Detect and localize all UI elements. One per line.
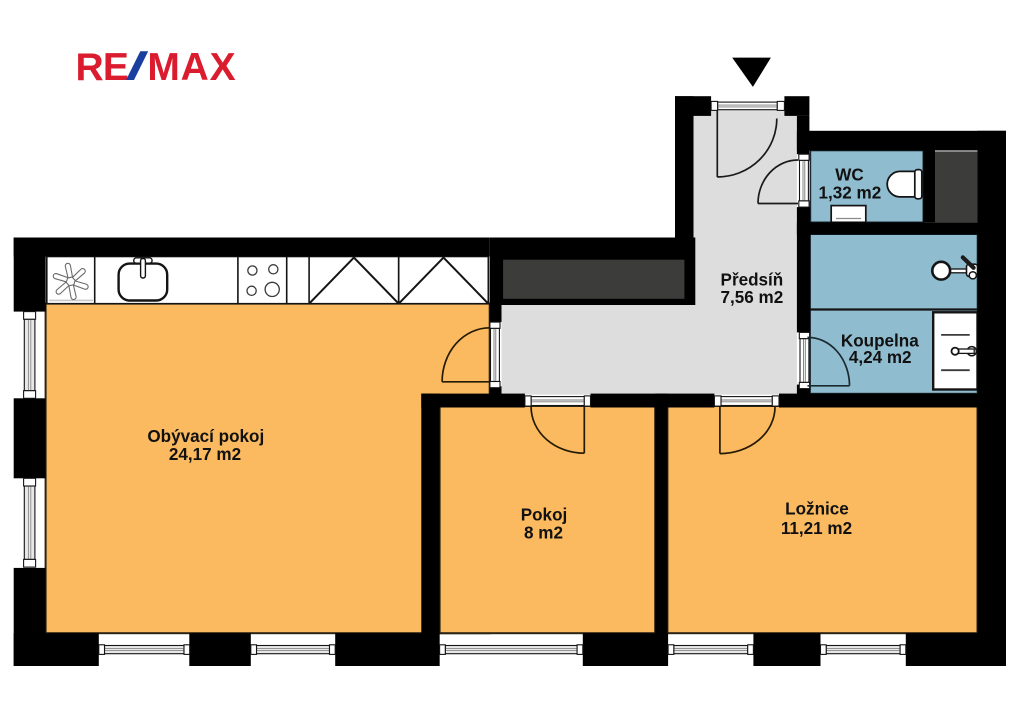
svg-text:11,21 m2: 11,21 m2 (781, 519, 852, 538)
svg-text:Předsíň: Předsíň (721, 271, 784, 290)
svg-text:8 m2: 8 m2 (524, 524, 563, 543)
svg-text:7,56 m2: 7,56 m2 (721, 288, 784, 307)
svg-text:Pokoj: Pokoj (521, 506, 568, 525)
svg-text:4,24 m2: 4,24 m2 (849, 348, 912, 367)
svg-text:WC: WC (835, 166, 863, 185)
svg-text:MAX: MAX (147, 46, 236, 89)
svg-text:24,17 m2: 24,17 m2 (169, 445, 241, 464)
svg-text:Ložnice: Ložnice (785, 499, 849, 518)
svg-text:Obývací pokoj: Obývací pokoj (147, 427, 264, 446)
svg-text:RE: RE (76, 46, 129, 89)
svg-text:1,32 m2: 1,32 m2 (819, 183, 882, 202)
